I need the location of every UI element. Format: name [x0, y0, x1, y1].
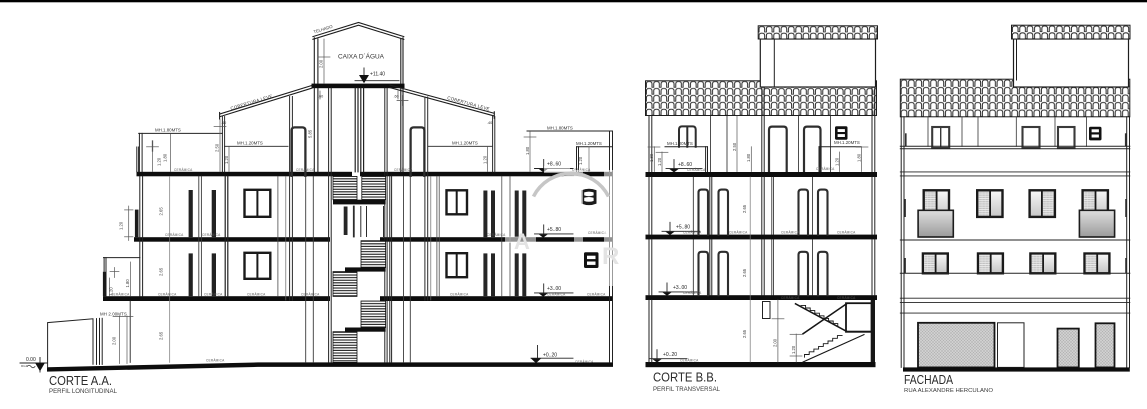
svg-text:+0..20: +0..20: [543, 353, 557, 359]
svg-text:R: R: [602, 243, 619, 270]
svg-text:.40: .40: [487, 121, 492, 125]
svg-text:MH.1.80MTS: MH.1.80MTS: [155, 127, 181, 132]
svg-text:CERÂMICA: CERÂMICA: [301, 293, 320, 297]
svg-text:PERFIL LONGITUDINAL: PERFIL LONGITUDINAL: [49, 388, 117, 395]
svg-text:CERÂMICA: CERÂMICA: [204, 293, 223, 297]
svg-text:MH.1.20MTS: MH.1.20MTS: [237, 141, 263, 146]
svg-text:CERÂMICA: CERÂMICA: [587, 293, 606, 297]
svg-text:CERÂMICA: CERÂMICA: [158, 293, 177, 297]
svg-text:CERÂMICA: CERÂMICA: [680, 358, 699, 362]
svg-text:+3..00: +3..00: [673, 285, 687, 291]
svg-text:CERÂMICA: CERÂMICA: [165, 233, 184, 237]
svg-text:1.20: 1.20: [482, 155, 487, 164]
svg-text:1.80: 1.80: [162, 153, 167, 162]
svg-text:MH 2.00MTS: MH 2.00MTS: [100, 312, 127, 317]
svg-text:CERÂMICA: CERÂMICA: [683, 231, 702, 235]
svg-text:MH.1.20MTS: MH.1.20MTS: [576, 141, 602, 146]
svg-text:RUA: RUA: [21, 364, 27, 368]
svg-text:CERÂMICA: CERÂMICA: [206, 359, 225, 363]
svg-text:2.65: 2.65: [159, 207, 164, 216]
svg-text:CERÂMICA: CERÂMICA: [247, 293, 266, 297]
svg-text:+5..80: +5..80: [547, 227, 561, 233]
svg-text:CERÂMICA: CERÂMICA: [450, 293, 469, 297]
svg-text:.60: .60: [318, 95, 323, 99]
svg-text:PERFIL TRANSVERSAL: PERFIL TRANSVERSAL: [653, 386, 720, 393]
svg-text:2.65: 2.65: [742, 329, 747, 338]
svg-text:1.80: 1.80: [649, 153, 654, 162]
svg-text:CERÂMICA: CERÂMICA: [296, 168, 315, 172]
svg-text:CERÂMICA: CERÂMICA: [174, 168, 193, 172]
svg-text:1.80: 1.80: [125, 279, 130, 288]
svg-text:CERÂMICA: CERÂMICA: [487, 233, 506, 237]
svg-text:MH.1.20MTS: MH.1.20MTS: [667, 141, 693, 146]
svg-text:CERÂMICA: CERÂMICA: [111, 293, 130, 297]
svg-text:RUA ALEXANDRE HERCULANO: RUA ALEXANDRE HERCULANO: [904, 388, 993, 394]
svg-text:CERÂMICA: CERÂMICA: [683, 291, 702, 295]
svg-text:MH.1.20MTS: MH.1.20MTS: [452, 141, 478, 146]
svg-text:CERÂMICA: CERÂMICA: [816, 167, 835, 171]
svg-text:1.80: 1.80: [525, 146, 530, 155]
svg-text:1.20: 1.20: [657, 157, 662, 166]
svg-text:2.00: 2.00: [112, 336, 117, 345]
svg-text:2.00: 2.00: [772, 338, 777, 347]
svg-text:2.65: 2.65: [159, 267, 164, 276]
svg-text:1.20: 1.20: [119, 221, 124, 230]
svg-text:FACHADA: FACHADA: [904, 372, 953, 387]
svg-text:2.50: 2.50: [732, 142, 737, 151]
svg-text:1.20: 1.20: [224, 155, 229, 164]
svg-text:1.20: 1.20: [791, 345, 796, 354]
svg-text:+11.40: +11.40: [370, 72, 385, 78]
svg-text:CAIXA D´ÁGUA: CAIXA D´ÁGUA: [338, 52, 385, 61]
svg-text:MH.1.20MTS: MH.1.20MTS: [834, 140, 860, 145]
svg-text:1.80: 1.80: [856, 153, 861, 162]
svg-text:CERÂMICA: CERÂMICA: [837, 296, 856, 300]
svg-text:+5..80: +5..80: [676, 225, 690, 231]
svg-text:1.20: 1.20: [834, 157, 839, 166]
svg-text:CERÂMICA: CERÂMICA: [547, 293, 566, 297]
svg-text:0.00: 0.00: [26, 357, 36, 363]
svg-text:CERÂMICA: CERÂMICA: [781, 296, 800, 300]
svg-text:CERÂMICA: CERÂMICA: [575, 360, 594, 364]
svg-text:CORTE B.B.: CORTE B.B.: [653, 370, 717, 385]
svg-text:1.80: 1.80: [746, 153, 751, 162]
svg-text:CERÂMICA: CERÂMICA: [837, 231, 856, 235]
svg-text:2.65: 2.65: [159, 331, 164, 340]
svg-text:MH.1.80MTS: MH.1.80MTS: [547, 125, 573, 130]
svg-text:CERÂMICA: CERÂMICA: [729, 231, 748, 235]
svg-text:A: A: [514, 229, 530, 254]
svg-text:2.50: 2.50: [215, 143, 220, 152]
svg-text:CERÂMICA: CERÂMICA: [781, 231, 800, 235]
svg-text:CERÂMICA: CERÂMICA: [687, 168, 706, 172]
svg-text:+3..00: +3..00: [547, 286, 561, 292]
svg-text:2.65: 2.65: [742, 204, 747, 213]
svg-text:CERÂMICA: CERÂMICA: [202, 233, 221, 237]
svg-text:CORTE A.A.: CORTE A.A.: [49, 373, 112, 388]
svg-text:1.20: 1.20: [578, 156, 583, 165]
svg-text:.40: .40: [221, 121, 226, 125]
svg-text:2.65: 2.65: [742, 268, 747, 277]
svg-text:+0..20: +0..20: [663, 352, 677, 358]
svg-text:CERÂMICA: CERÂMICA: [394, 168, 413, 172]
svg-text:+8..60: +8..60: [678, 162, 692, 168]
svg-text:1.20: 1.20: [156, 157, 161, 166]
svg-text:5.85: 5.85: [308, 129, 313, 138]
svg-text:2.00: 2.00: [319, 59, 324, 68]
